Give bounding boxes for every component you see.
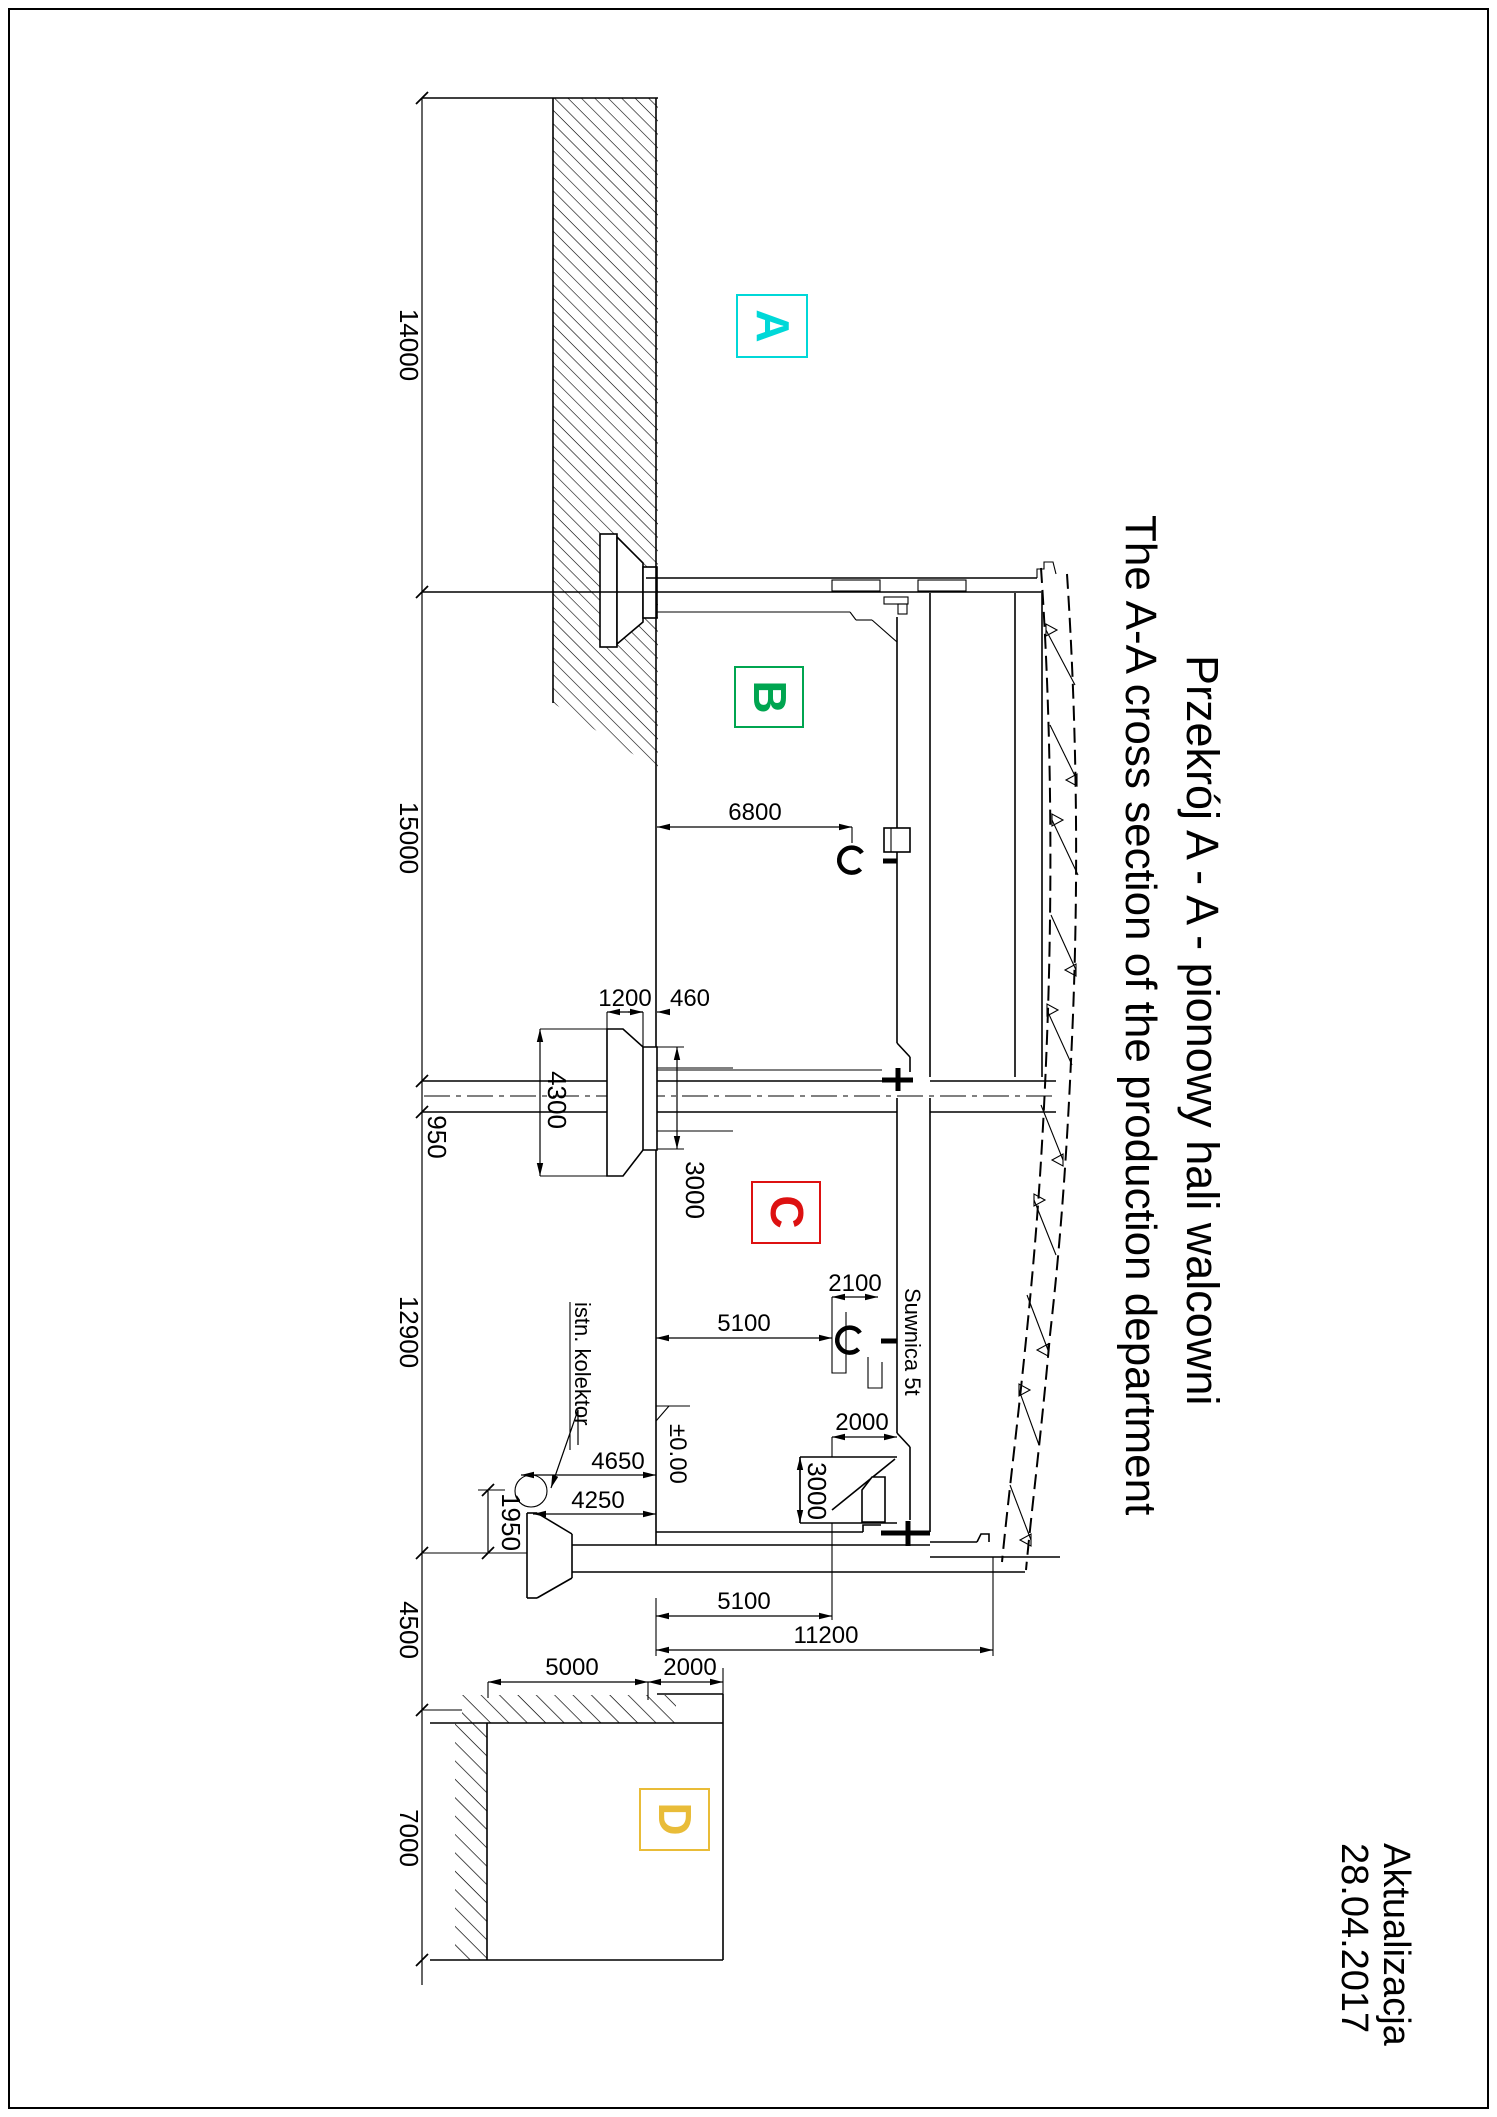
dim-3000-corbel: 3000 [680, 1161, 710, 1219]
dim-chain-950: 950 [422, 1115, 452, 1158]
dim-4250: 4250 [571, 1487, 624, 1514]
dim-5100-lower: 5100 [717, 1588, 770, 1615]
zone-b-letter: B [744, 680, 796, 713]
collector-note: istn. kolektor [570, 1302, 595, 1426]
dim-460: 460 [670, 985, 710, 1012]
zone-labels: A B C D [640, 295, 820, 1850]
level-mark: ±0.00 [656, 1406, 691, 1484]
crane-rail-section-lower [837, 1328, 860, 1353]
truss-web-members [1010, 624, 1078, 1546]
dim-5000: 5000 [545, 1654, 598, 1681]
dim-chain-15000: 15000 [394, 802, 424, 874]
dim-4300: 4300 [542, 1071, 572, 1129]
title-block: Przekrój A - A - pionowy hali walcowni T… [1116, 515, 1228, 1515]
dim-2000-pit: 2000 [835, 1409, 888, 1436]
level-value: ±0.00 [664, 1424, 691, 1484]
detail-dimensions: 6800 1200 460 4300 3000 2100 5100 2000 3… [478, 799, 993, 1700]
dim-4650: 4650 [591, 1448, 644, 1475]
crane-note: Suwnica 5t [900, 1288, 925, 1396]
zone-a-letter: A [747, 309, 799, 342]
foundation-and-ground: istn. kolektor ±0.00 [515, 1302, 1060, 1656]
dim-2100: 2100 [828, 1270, 881, 1297]
dim-1950: 1950 [496, 1493, 526, 1551]
dim-5100-upper: 5100 [717, 1310, 770, 1337]
dim-6800: 6800 [728, 799, 781, 826]
dim-chain-12900: 12900 [394, 1296, 424, 1368]
zone-d-letter: D [649, 1802, 701, 1835]
wall-a-hatched-section [422, 98, 658, 770]
dim-chain-4500: 4500 [394, 1601, 424, 1659]
revision-note: Aktualizacja 28.04.2017 [1333, 1843, 1417, 2047]
roof-structure [422, 562, 1056, 642]
zone-c-letter: C [761, 1195, 813, 1228]
page-title-en: The A-A cross section of the production … [1116, 515, 1165, 1515]
dim-chain-14000: 14000 [394, 309, 424, 381]
dim-chain-7000: 7000 [394, 1809, 424, 1867]
crane-runway-band [422, 1029, 1058, 1176]
roof-truss [1002, 568, 1078, 1570]
revision-label: Aktualizacja [1375, 1843, 1417, 2047]
revision-date: 28.04.2017 [1333, 1843, 1375, 2033]
dim-1200: 1200 [598, 985, 651, 1012]
dim-11200: 11200 [794, 1622, 859, 1649]
crane-rail-section-upper [839, 848, 862, 873]
page-title-pl: Przekrój A - A - pionowy hali walcowni [1177, 655, 1228, 1405]
drawing-canvas: Suwnica 5t istn. kolektor [0, 0, 1497, 2117]
dim-3000-pit: 3000 [802, 1462, 832, 1520]
dim-2000-cellar: 2000 [663, 1654, 716, 1681]
